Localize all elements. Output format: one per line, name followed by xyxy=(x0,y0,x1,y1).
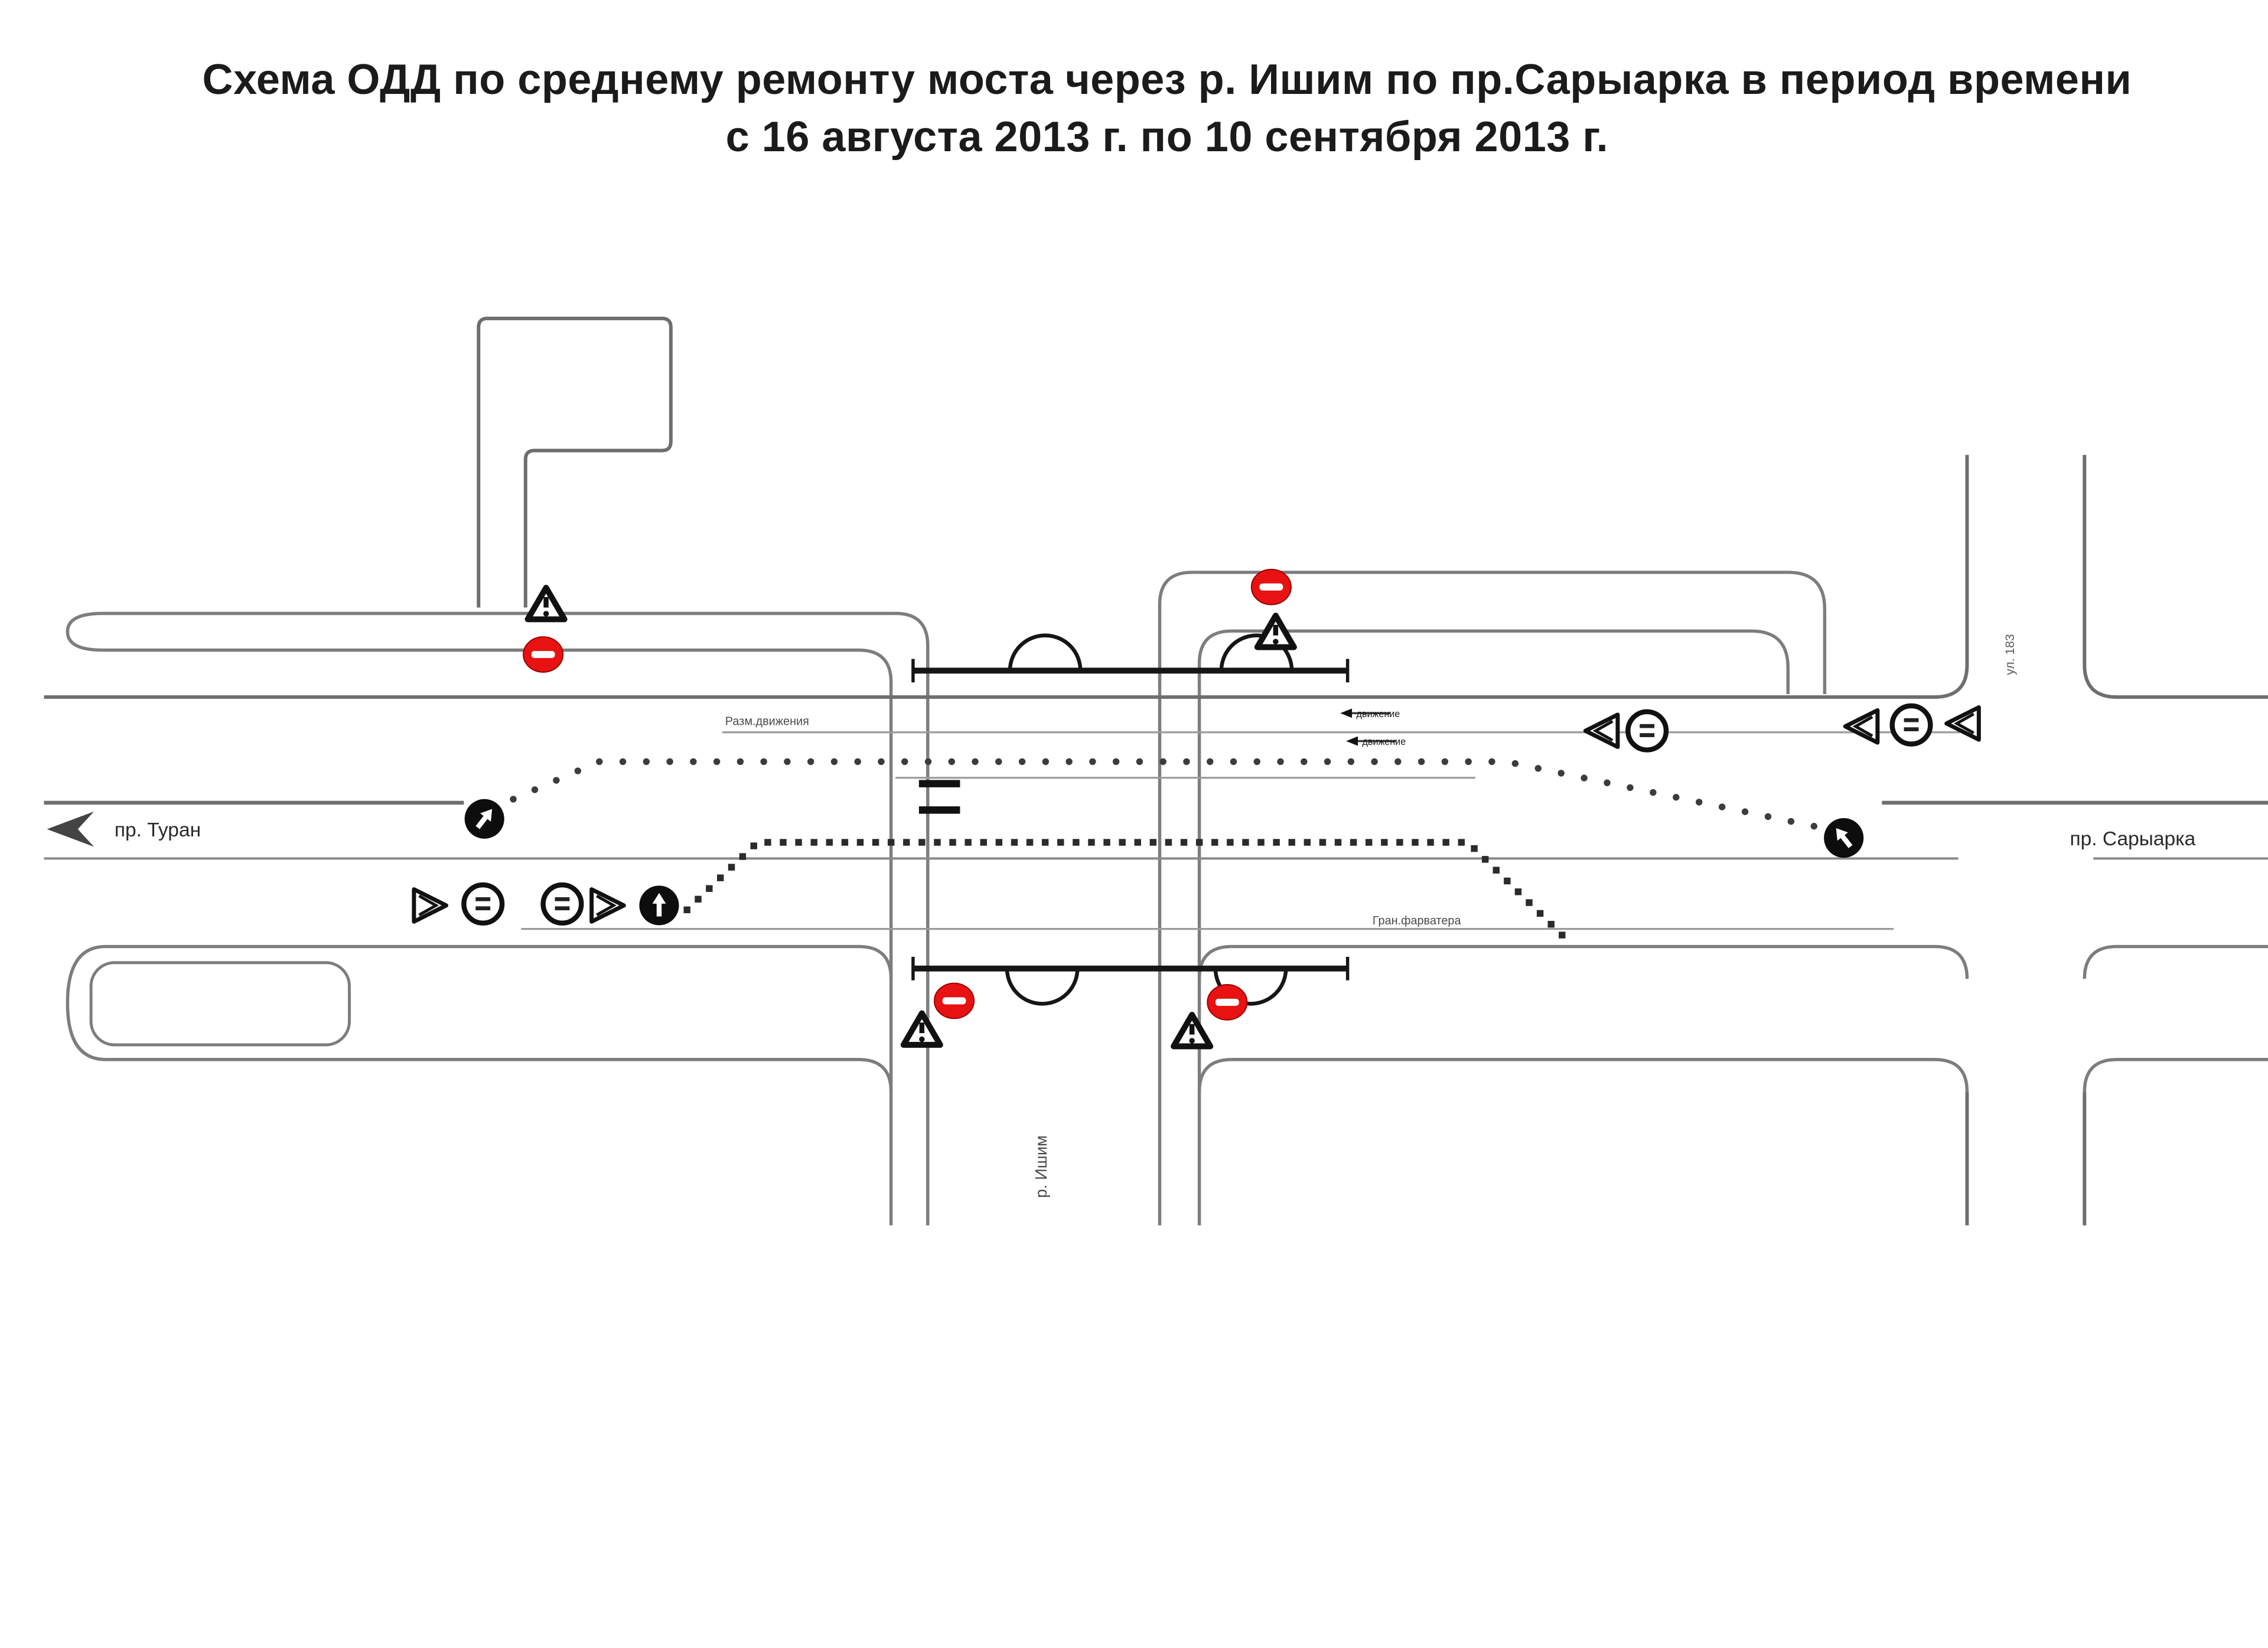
no-entry-sign xyxy=(1207,985,1247,1020)
hatched-guide-triangle-icon xyxy=(1845,710,1878,742)
signs-layer: движениедвижение xyxy=(414,569,1979,1046)
lane-flow-arrow-icon: движение xyxy=(1346,737,1406,747)
label-river: р. Ишим xyxy=(1032,1135,1050,1198)
hatched-guide-triangle-icon xyxy=(1585,715,1618,747)
diagram-title-line1: Схема ОДД по среднему ремонту моста чере… xyxy=(203,56,2132,103)
round-prescription-sign xyxy=(543,885,582,923)
diagram-title-line2: с 16 августа 2013 г. по 10 сентября 2013… xyxy=(726,113,1609,161)
bridge-spans xyxy=(913,636,1348,1004)
roadworks-warning-sign xyxy=(904,1013,940,1044)
hatched-guide-triangle-icon xyxy=(1947,707,1979,740)
label-avenue-west: пр. Туран xyxy=(115,819,201,841)
bridge-deck-south xyxy=(913,957,1348,1004)
road-network xyxy=(44,318,2268,1225)
label-avenue-east: пр. Сарыарка xyxy=(2070,828,2195,850)
detour-routes-layer xyxy=(488,758,1817,939)
label-fairway-note: Гран.фарватера xyxy=(1373,914,1462,927)
scheme-canvas: Схема ОДД по среднему ремонту моста чере… xyxy=(0,0,2268,1648)
round-prescription-sign xyxy=(464,885,502,923)
left-bottom-frontage xyxy=(67,946,891,1092)
no-entry-sign xyxy=(934,983,974,1019)
closed-lane-dashes xyxy=(919,784,960,810)
lane-flow-arrow-label: движение xyxy=(1362,737,1406,747)
label-lane-note-north: Разм.движения xyxy=(725,715,809,728)
detour-direction-sign xyxy=(639,885,679,925)
top-left-street xyxy=(478,318,671,607)
right-bottom-frontage xyxy=(1200,946,2268,1092)
lane-flow-arrow-label: движение xyxy=(1357,709,1400,719)
lane-flow-arrow-icon: движение xyxy=(1340,708,1400,719)
no-entry-sign xyxy=(1252,569,1291,605)
detour-direction-sign xyxy=(457,791,512,846)
bridge-arch-icon xyxy=(1010,636,1080,671)
round-prescription-sign xyxy=(1628,712,1666,750)
embankment-road-west xyxy=(859,613,928,1225)
no-entry-sign xyxy=(523,637,563,672)
left-frontage-road xyxy=(67,613,895,650)
round-prescription-sign xyxy=(1892,706,1931,744)
traffic-island xyxy=(91,963,349,1045)
bridge-arch-icon xyxy=(1007,969,1077,1004)
hatched-guide-triangle-icon xyxy=(414,890,447,922)
label-side-street: ул. 183 xyxy=(2003,634,2017,675)
hatched-guide-triangle-icon xyxy=(592,890,624,922)
west-direction-arrow-icon xyxy=(47,812,94,847)
detour-route-eastbound xyxy=(488,758,1817,830)
cross-street xyxy=(1967,455,2084,1225)
roadworks-warning-sign xyxy=(1174,1015,1210,1046)
roadworks-warning-sign xyxy=(528,588,565,619)
